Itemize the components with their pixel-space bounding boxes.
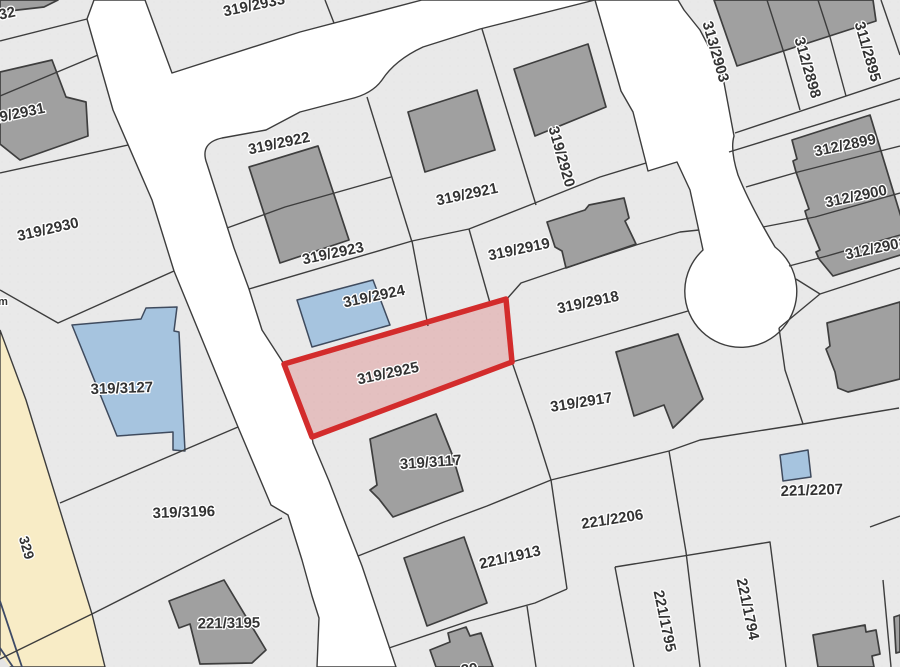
svg-text:319/3127: 319/3127 — [90, 379, 153, 398]
svg-text:319/3196: 319/3196 — [152, 503, 215, 522]
svg-text:221/2207: 221/2207 — [780, 481, 843, 500]
svg-text:m: m — [0, 296, 8, 308]
svg-text:29: 29 — [460, 660, 479, 667]
svg-text:221/3195: 221/3195 — [197, 614, 260, 632]
